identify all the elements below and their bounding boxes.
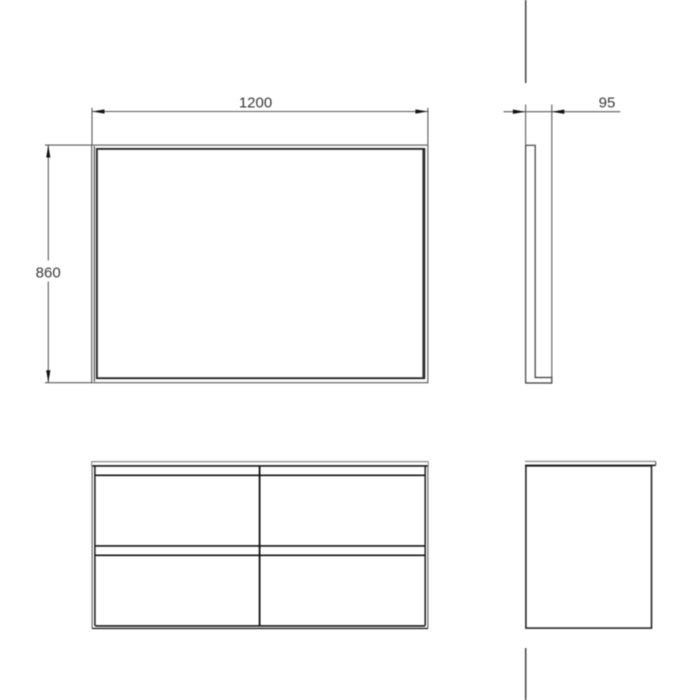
svg-text:95: 95 bbox=[599, 95, 616, 112]
svg-text:860: 860 bbox=[36, 264, 61, 281]
svg-text:1200: 1200 bbox=[239, 94, 272, 111]
